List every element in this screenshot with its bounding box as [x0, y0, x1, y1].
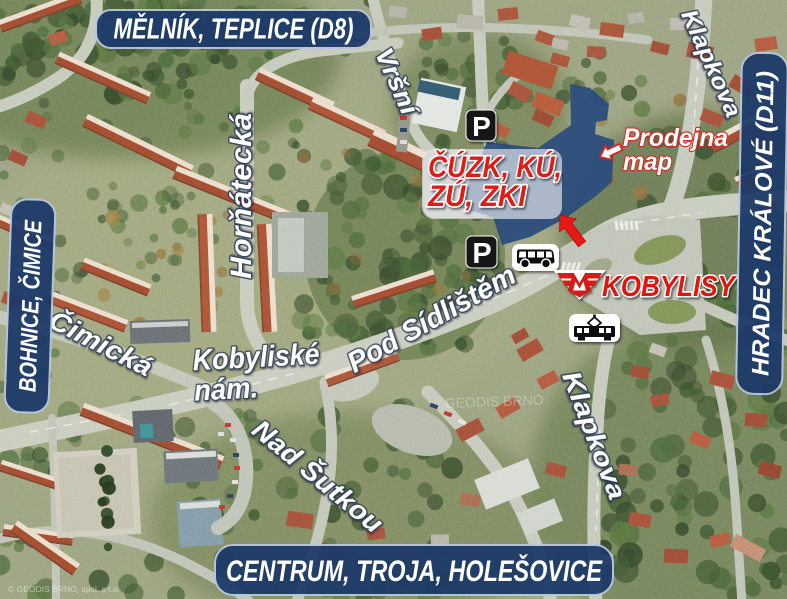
svg-text:ČÚZK, KÚ,: ČÚZK, KÚ, — [428, 150, 562, 184]
svg-text:© GEODIS BRNO, spol. s r.o.: © GEODIS BRNO, spol. s r.o. — [8, 584, 120, 594]
svg-text:HRADEC KRÁLOVÉ (D11): HRADEC KRÁLOVÉ (D11) — [746, 71, 779, 376]
svg-text:nám.: nám. — [193, 371, 259, 407]
svg-text:map: map — [623, 148, 672, 176]
svg-text:ZÚ, ZKI: ZÚ, ZKI — [427, 179, 527, 213]
svg-text:MĚLNÍK, TEPLICE (D8): MĚLNÍK, TEPLICE (D8) — [114, 12, 354, 46]
svg-text:KOBYLISY: KOBYLISY — [602, 271, 737, 303]
svg-text:Horňátecká: Horňátecká — [225, 113, 258, 279]
svg-text:CENTRUM, TROJA, HOLEŠOVICE: CENTRUM, TROJA, HOLEŠOVICE — [226, 554, 603, 588]
svg-text:P: P — [472, 238, 491, 270]
svg-text:P: P — [472, 111, 491, 142]
